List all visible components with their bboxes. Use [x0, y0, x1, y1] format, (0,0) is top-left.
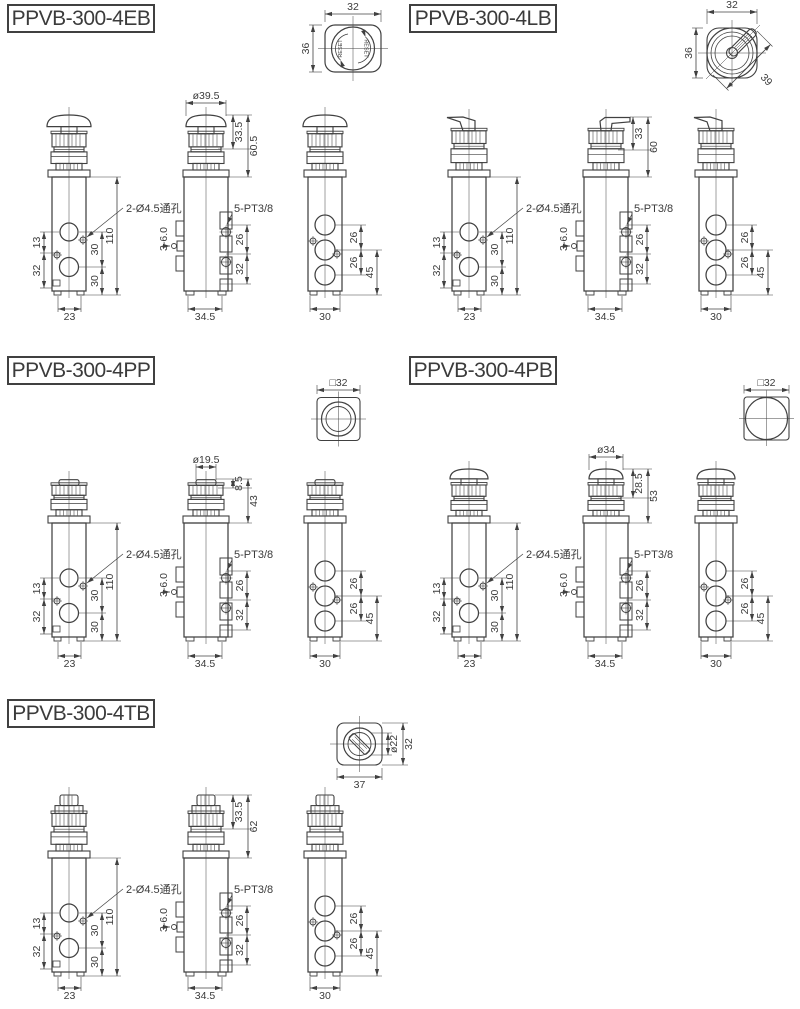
side-port-pitch-dim: 26	[234, 915, 246, 927]
button-h2-dim: 60.5	[248, 136, 260, 157]
exhaust-tab	[176, 256, 184, 271]
body-height-dim: 110	[104, 573, 116, 590]
thread-callout: 5-PT3/8	[634, 203, 673, 215]
valve-back-view-g4PP: 26264530	[304, 471, 382, 670]
back-width-dim: 30	[710, 311, 722, 323]
dim-arrow	[782, 388, 789, 392]
valve-back-view-g4PB: 26264530	[695, 461, 773, 670]
thread-callout: 5-PT3/8	[234, 884, 273, 896]
body-detail	[453, 626, 460, 632]
dim-arrow	[115, 523, 119, 530]
dim-arrow	[442, 599, 446, 606]
port-pitch-b-dim: 30	[89, 621, 101, 633]
dim-arrow	[750, 225, 754, 232]
back-pitch-b-dim: 26	[348, 938, 360, 950]
dim-arrow	[701, 654, 708, 658]
dim-arrow	[694, 71, 698, 78]
dim-arrow	[42, 962, 46, 969]
dim-arrow	[375, 634, 379, 641]
dim-arrow	[246, 479, 250, 486]
product-label-g4PP: PPVB-300-4PP	[8, 357, 154, 384]
top-height-dim: 36	[300, 43, 312, 55]
back-pitch-a-dim: 26	[348, 232, 360, 244]
nipple	[572, 244, 577, 249]
dim-arrow	[341, 60, 345, 67]
dim-arrow	[500, 267, 504, 274]
dim-arrow	[42, 627, 46, 634]
valve-back-view-g4TB: 26264530	[304, 787, 382, 1002]
dim-arrow	[246, 115, 250, 122]
front-width-dim: 23	[464, 311, 476, 323]
dim-arrow	[615, 654, 622, 658]
product-label-g4PB: PPVB-300-4PB	[410, 357, 556, 384]
button-h2-dim: 60	[648, 141, 660, 153]
body-detail	[453, 280, 460, 286]
valve-front-view-g4PB: 13323030110232-Ø4.5通孔	[431, 461, 582, 670]
side-width-dim: 34.5	[195, 658, 216, 670]
dim-arrow	[245, 958, 249, 965]
port-pitch-b-dim: 30	[489, 275, 501, 287]
dim-arrow	[100, 606, 104, 613]
button-h2-dim: 62	[248, 821, 260, 833]
dim-arrow	[442, 281, 446, 288]
dim-arrow	[115, 858, 119, 865]
valve-front-view-g4LB: 13323030110232-Ø4.5通孔	[431, 109, 582, 323]
dim-arrow	[100, 941, 104, 948]
dim-arrow	[694, 28, 698, 35]
line	[737, 36, 752, 51]
back-pitch-b-dim: 26	[739, 257, 751, 269]
hole-pitch-upper-dim: 13	[31, 583, 43, 595]
port-boss	[620, 279, 632, 291]
dim-arrow	[333, 307, 340, 311]
top-view-g4EB: RESETRESET3236	[300, 1, 388, 81]
valve-back-view-g4LB: 26264530	[694, 109, 773, 323]
dim-arrow	[215, 654, 222, 658]
dim-arrow	[311, 65, 315, 72]
line	[706, 25, 760, 79]
exhaust-tab	[176, 567, 184, 582]
hole-pitch-upper-dim: 13	[31, 918, 43, 930]
dim-arrow	[401, 723, 405, 730]
dim-arrow	[359, 931, 363, 938]
dim-arrow	[245, 225, 249, 232]
cap-diameter-dim: ø19.5	[193, 454, 220, 466]
dim-arrow	[100, 260, 104, 267]
dim-arrow	[359, 571, 363, 578]
back-width-dim: 30	[710, 658, 722, 670]
back-pitch-b-dim: 26	[348, 603, 360, 615]
dim-arrow	[353, 388, 360, 392]
dim-arrow	[645, 277, 649, 284]
exhaust-tab	[177, 241, 184, 251]
exhaust-tab	[177, 922, 184, 932]
dim-arrow	[359, 225, 363, 232]
front-width-dim: 23	[64, 990, 76, 1002]
dim-arrow	[310, 654, 317, 658]
top-height-dim: 36	[683, 47, 695, 59]
dim-arrow	[500, 634, 504, 641]
cap-diameter-dim: ø39.5	[193, 90, 220, 102]
through-hole-callout: 2-Ø4.5通孔	[126, 548, 182, 561]
dim-arrow	[724, 307, 731, 311]
side-port-pitch-lower-dim: 32	[634, 263, 646, 275]
back-width-dim: 30	[319, 311, 331, 323]
dim-arrow	[374, 12, 381, 16]
dim-arrow	[115, 288, 119, 295]
button-h2-dim: 53	[648, 490, 660, 502]
front-width-dim: 23	[464, 658, 476, 670]
dim-arrow	[219, 101, 226, 105]
dim-arrow	[615, 307, 622, 311]
through-hole-callout: 2-Ø4.5通孔	[126, 202, 182, 215]
product-code: PPVB-300-4LB	[415, 7, 551, 30]
nipple	[172, 244, 177, 249]
dim-arrow	[750, 250, 754, 257]
reset-label: RESET	[363, 39, 369, 58]
exhaust-tab	[576, 221, 584, 236]
hole-pitch-lower-dim: 32	[31, 946, 43, 958]
dim-arrow	[500, 613, 504, 620]
dim-arrow	[361, 30, 365, 37]
reset-label: RESET	[338, 39, 344, 58]
exhaust-tab	[576, 256, 584, 271]
hole-pitch-lower-dim: 32	[31, 611, 43, 623]
dim-arrow	[42, 599, 46, 606]
body-detail	[53, 961, 60, 967]
side-port-pitch-dim: 26	[234, 234, 246, 246]
dim-arrow	[707, 10, 714, 14]
dim-arrow	[100, 613, 104, 620]
back-width-dim: 30	[319, 990, 331, 1002]
dim-arrow	[645, 623, 649, 630]
dim-arrow	[100, 288, 104, 295]
top-view-g4PB: □32	[739, 377, 794, 446]
nipple	[172, 590, 177, 595]
dim-arrow	[115, 969, 119, 976]
product-code: PPVB-300-4PP	[12, 359, 151, 382]
dim-arrow	[645, 254, 649, 261]
dim-arrow	[401, 758, 405, 765]
dim-arrow	[42, 281, 46, 288]
body-detail	[53, 626, 60, 632]
lever-handle	[600, 118, 630, 131]
nipple	[572, 590, 577, 595]
dim-arrow	[215, 307, 222, 311]
back-pitch-total-dim: 45	[755, 267, 767, 279]
port-boss	[220, 279, 232, 291]
dim-arrow	[375, 931, 379, 938]
dim-arrow	[766, 596, 770, 603]
back-pitch-a-dim: 26	[739, 578, 751, 590]
dim-arrow	[589, 455, 596, 459]
top-square-dim: □32	[757, 377, 775, 389]
button-h2-dim: 43	[248, 495, 260, 507]
hole-pitch-upper-dim: 13	[431, 583, 443, 595]
dim-arrow	[515, 523, 519, 530]
hole-pitch-upper-dim: 13	[431, 237, 443, 249]
dim-arrow	[701, 307, 708, 311]
dim-arrow	[246, 170, 250, 177]
body-height-dim: 110	[504, 573, 516, 590]
dim-arrow	[245, 928, 249, 935]
valve-front-view-g4EB: 13323030110232-Ø4.5通孔	[31, 107, 182, 323]
dim-arrow	[375, 288, 379, 295]
dim-arrow	[100, 948, 104, 955]
dim-arrow	[359, 250, 363, 257]
side-width-dim: 34.5	[595, 311, 616, 323]
dim-arrow	[645, 225, 649, 232]
exhaust-tab	[576, 567, 584, 582]
port-pitch-b-dim: 30	[89, 275, 101, 287]
valve-front-view-g4TB: 13323030110232-Ø4.5通孔	[31, 787, 182, 1002]
side-port-pitch-dim: 26	[234, 580, 246, 592]
top-view-g4TB: ø223237	[330, 716, 415, 791]
back-pitch-total-dim: 45	[364, 267, 376, 279]
side-port-pitch-lower-dim: 32	[634, 609, 646, 621]
hole-pitch-upper-dim: 13	[31, 237, 43, 249]
dim-arrow	[500, 606, 504, 613]
top-height-dim: 32	[403, 738, 415, 750]
dim-arrow	[442, 627, 446, 634]
body-height-dim: 110	[504, 227, 516, 244]
body-detail	[53, 280, 60, 286]
body-height-dim: 110	[104, 908, 116, 925]
side-width-dim: 34.5	[195, 990, 216, 1002]
dim-arrow	[375, 775, 382, 779]
back-pitch-total-dim: 45	[364, 948, 376, 960]
dim-arrow	[317, 388, 324, 392]
thread-callout: 5-PT3/8	[234, 549, 273, 561]
line	[757, 31, 773, 47]
dim-arrow	[100, 969, 104, 976]
exhaust-tab	[177, 587, 184, 597]
port-pitch-b-dim: 30	[89, 956, 101, 968]
dim-arrow	[115, 634, 119, 641]
exhaust-tab	[176, 902, 184, 917]
exhaust-tab	[176, 937, 184, 952]
dim-arrow	[645, 593, 649, 600]
port-pitch-a-dim: 30	[89, 590, 101, 602]
dim-arrow	[616, 455, 623, 459]
exhaust-tab	[577, 587, 584, 597]
port-pitch-b-dim: 30	[489, 621, 501, 633]
dim-arrow	[646, 170, 650, 177]
back-width-dim: 30	[319, 658, 331, 670]
dim-arrow	[245, 277, 249, 284]
top-view-g4PP: □32	[311, 377, 366, 447]
dim-arrow	[42, 253, 46, 260]
port-pitch-a-dim: 30	[89, 925, 101, 937]
port-pitch-a-dim: 30	[489, 244, 501, 256]
dim-arrow	[750, 571, 754, 578]
dim-arrow	[515, 288, 519, 295]
dim-arrow	[646, 117, 650, 124]
top-width-dim: 32	[347, 1, 359, 13]
dim-arrow	[245, 254, 249, 261]
button-h1-dim: 33.5	[233, 802, 245, 823]
dim-arrow	[246, 795, 250, 802]
dim-arrow	[442, 253, 446, 260]
dim-arrow	[375, 969, 379, 976]
product-code: PPVB-300-4TB	[12, 702, 150, 725]
dim-arrow	[359, 596, 363, 603]
dim-arrow	[245, 247, 249, 254]
button-h1-dim: 33	[633, 128, 645, 140]
dim-arrow	[246, 516, 250, 523]
dim-arrow	[325, 12, 332, 16]
dim-arrow	[631, 143, 635, 150]
body-height-dim: 110	[104, 227, 116, 244]
dim-arrow	[646, 516, 650, 523]
back-pitch-a-dim: 26	[348, 578, 360, 590]
dim-arrow	[645, 571, 649, 578]
side-port-pitch-dim: 26	[634, 234, 646, 246]
dim-arrow	[245, 571, 249, 578]
dim-arrow	[215, 986, 222, 990]
cap-diameter-dim: ø34	[597, 444, 615, 456]
dim-arrow	[231, 115, 235, 122]
port-boss	[220, 960, 232, 972]
front-width-dim: 23	[64, 658, 76, 670]
dim-arrow	[744, 388, 751, 392]
valve-back-view-g4EB: 26264530	[303, 107, 382, 323]
line	[734, 33, 749, 48]
back-pitch-b-dim: 26	[739, 603, 751, 615]
dim-arrow	[245, 623, 249, 630]
side-port-pitch-lower-dim: 32	[234, 609, 246, 621]
dim-arrow	[115, 177, 119, 184]
hole-pitch-lower-dim: 32	[431, 611, 443, 623]
port-boss	[620, 625, 632, 637]
exhaust-tab	[576, 602, 584, 617]
dim-arrow	[42, 934, 46, 941]
valve-dimension-sheet: PPVB-300-4EB13323030110232-Ø4.5通孔263234.…	[0, 0, 800, 1009]
side-port-pitch-lower-dim: 32	[234, 263, 246, 275]
dim-arrow	[310, 307, 317, 311]
dim-arrow	[333, 654, 340, 658]
dim-arrow	[310, 986, 317, 990]
dim-arrow	[311, 25, 315, 32]
dim-arrow	[337, 775, 344, 779]
side-port-pitch-dim: 26	[634, 580, 646, 592]
back-pitch-b-dim: 26	[348, 257, 360, 269]
front-width-dim: 23	[64, 311, 76, 323]
exhaust-tab	[176, 602, 184, 617]
port-boss	[220, 625, 232, 637]
port-pitch-a-dim: 30	[89, 244, 101, 256]
product-label-g4TB: PPVB-300-4TB	[8, 700, 154, 727]
top-diag-dim: 39	[758, 72, 775, 89]
top-view-g4LB: 323639	[683, 0, 775, 91]
dim-arrow	[359, 906, 363, 913]
thread-callout: 5-PT3/8	[234, 203, 273, 215]
dim-arrow	[245, 600, 249, 607]
valve-front-view-g4PP: 13323030110232-Ø4.5通孔	[31, 471, 182, 670]
exhaust-tab	[577, 241, 584, 251]
side-width-dim: 34.5	[195, 311, 216, 323]
hole-pitch-lower-dim: 32	[431, 265, 443, 277]
dim-arrow	[231, 795, 235, 802]
dim-arrow	[646, 469, 650, 476]
dim-arrow	[375, 596, 379, 603]
dim-arrow	[631, 117, 635, 124]
dim-arrow	[245, 935, 249, 942]
product-code: PPVB-300-4PB	[414, 359, 553, 382]
dim-arrow	[500, 260, 504, 267]
dim-arrow	[500, 288, 504, 295]
through-hole-callout: 2-Ø4.5通孔	[526, 548, 582, 561]
back-pitch-total-dim: 45	[364, 613, 376, 625]
valve-side-view-g4LB: 263234.53-6.05-PT3/83360	[558, 109, 673, 323]
dim-arrow	[750, 10, 757, 14]
back-pitch-total-dim: 45	[755, 613, 767, 625]
hole-pitch-lower-dim: 32	[31, 265, 43, 277]
top-width-dim: 32	[726, 0, 738, 11]
dim-arrow	[375, 250, 379, 257]
valve-side-view-g4PP: 263234.53-6.05-PT3/8ø19.58.543	[158, 454, 273, 670]
drawing-canvas: PPVB-300-4EB13323030110232-Ø4.5通孔263234.…	[0, 0, 800, 1009]
dim-arrow	[515, 634, 519, 641]
button-h1-dim: 33.5	[233, 122, 245, 143]
dim-arrow	[246, 851, 250, 858]
dim-arrow	[724, 654, 731, 658]
back-pitch-a-dim: 26	[739, 232, 751, 244]
product-label-g4LB: PPVB-300-4LB	[410, 5, 556, 32]
thread-callout: 5-PT3/8	[634, 549, 673, 561]
exhaust-tab	[176, 221, 184, 236]
through-hole-callout: 2-Ø4.5通孔	[526, 202, 582, 215]
side-width-dim: 34.5	[595, 658, 616, 670]
back-pitch-a-dim: 26	[348, 913, 360, 925]
dim-arrow	[100, 634, 104, 641]
dim-arrow	[766, 634, 770, 641]
product-label-g4EB: PPVB-300-4EB	[8, 5, 154, 32]
dim-arrow	[245, 593, 249, 600]
dim-arrow	[766, 250, 770, 257]
nipple	[172, 925, 177, 930]
button-h1-dim: 8.5	[233, 476, 245, 491]
through-hole-callout: 2-Ø4.5通孔	[126, 883, 182, 896]
top-knob-dia-dim: ø22	[388, 735, 400, 753]
top-width-dim: 37	[354, 779, 366, 791]
dim-arrow	[515, 177, 519, 184]
dim-arrow	[766, 288, 770, 295]
dim-arrow	[245, 906, 249, 913]
button-h1-dim: 28.5	[633, 473, 645, 494]
dim-arrow	[645, 247, 649, 254]
dim-arrow	[333, 986, 340, 990]
dim-arrow	[100, 267, 104, 274]
dim-arrow	[645, 600, 649, 607]
port-pitch-a-dim: 30	[489, 590, 501, 602]
side-port-pitch-lower-dim: 32	[234, 944, 246, 956]
product-code: PPVB-300-4EB	[12, 7, 151, 30]
top-square-dim: □32	[329, 377, 347, 389]
dim-arrow	[750, 596, 754, 603]
